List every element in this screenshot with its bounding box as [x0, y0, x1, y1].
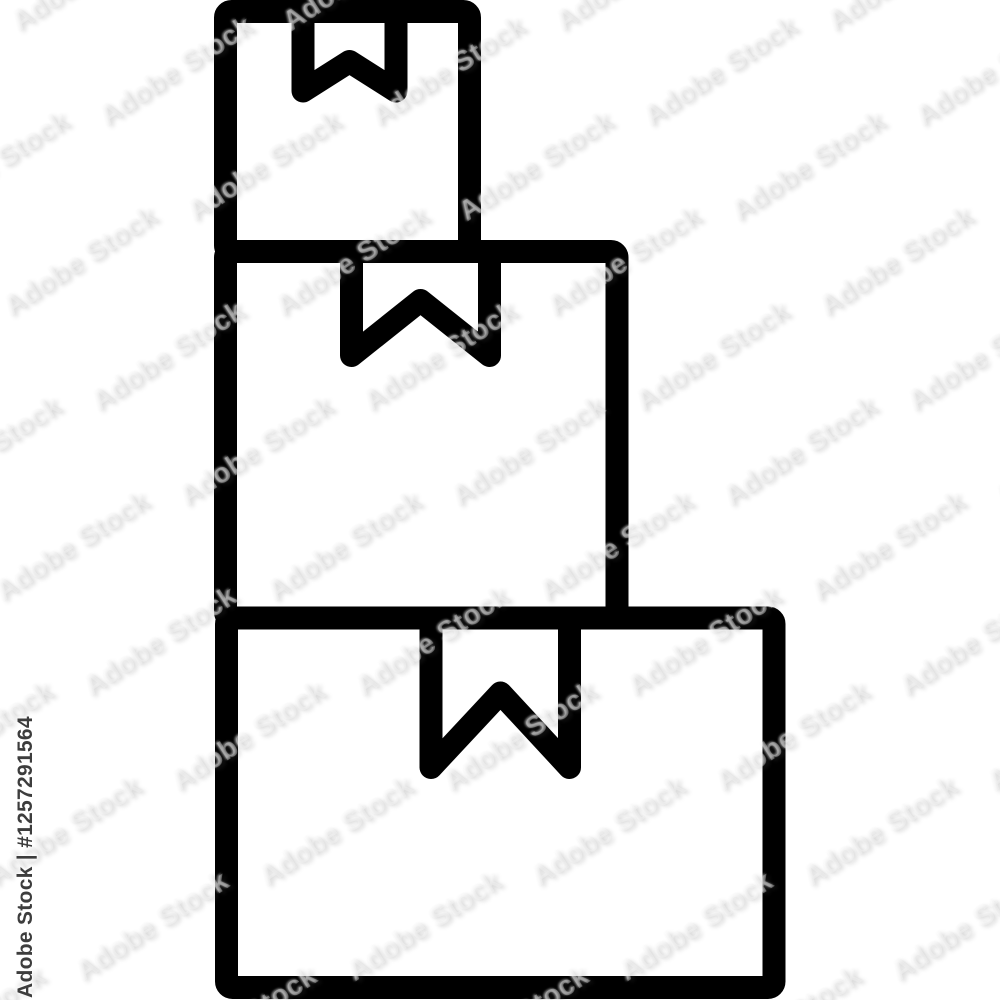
box-ribbon-bottom	[431, 618, 570, 768]
stacked-delivery-boxes-icon	[0, 0, 1000, 1000]
box-outline-top	[226, 12, 470, 252]
stock-image-preview: Adobe StockAdobe StockAdobe StockAdobe S…	[0, 0, 1000, 1000]
icon-strokes	[226, 12, 775, 988]
box-outline-bottom	[227, 618, 775, 988]
box-ribbon-top	[303, 12, 396, 92]
box-ribbon-middle	[352, 252, 490, 356]
watermark-id-text: Adobe Stock | #1257291564	[14, 716, 38, 998]
